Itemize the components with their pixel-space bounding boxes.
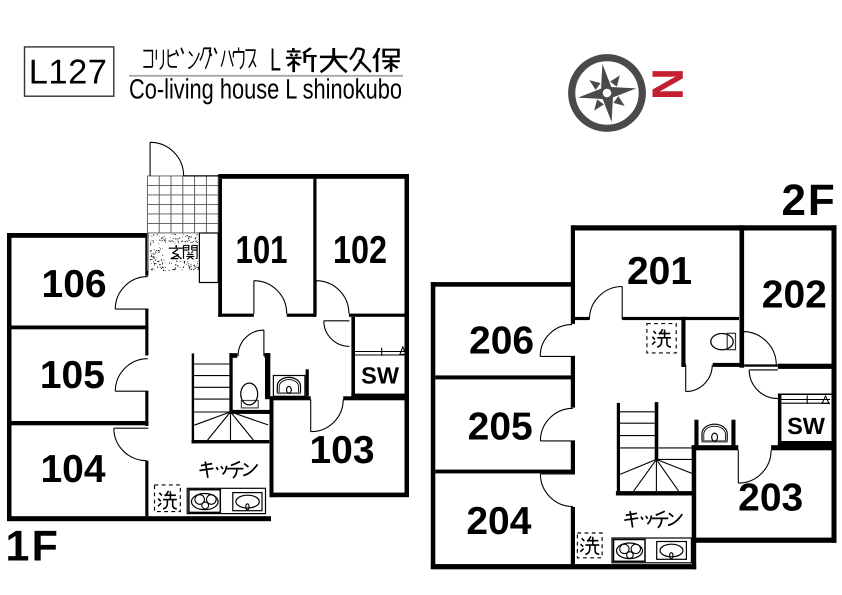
svg-text:L127: L127	[29, 54, 108, 92]
svg-text:Co-living house L shinokubo: Co-living house L shinokubo	[129, 74, 402, 105]
svg-text:2F: 2F	[782, 176, 837, 225]
svg-text:202: 202	[762, 273, 827, 316]
svg-text:105: 105	[40, 354, 105, 397]
svg-text:104: 104	[40, 448, 105, 491]
svg-text:103: 103	[309, 429, 374, 472]
svg-text:SW: SW	[361, 363, 400, 389]
svg-text:205: 205	[468, 406, 533, 449]
svg-text:1F: 1F	[6, 523, 61, 571]
svg-text:102: 102	[333, 229, 387, 272]
svg-text:SW: SW	[787, 413, 826, 439]
svg-text:203: 203	[738, 477, 803, 520]
svg-text:L: L	[270, 41, 281, 77]
svg-text:206: 206	[469, 320, 534, 363]
svg-text:101: 101	[236, 229, 288, 272]
svg-text:201: 201	[627, 250, 692, 293]
svg-text:106: 106	[42, 263, 107, 306]
svg-text:N: N	[642, 68, 691, 100]
svg-text:204: 204	[466, 500, 531, 543]
